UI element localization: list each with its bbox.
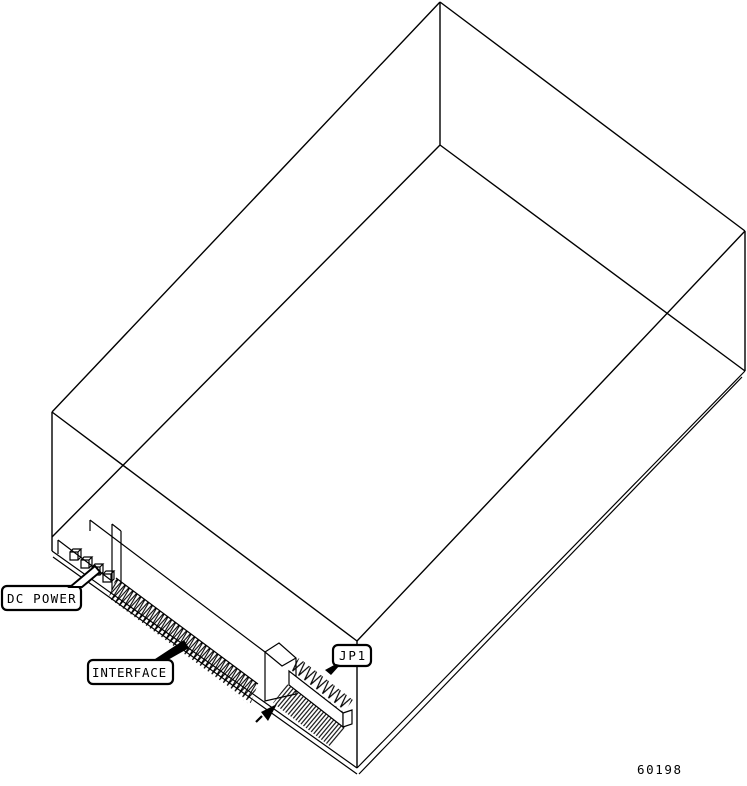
- dc-power-label: DC POWER: [2, 566, 100, 610]
- top-face-edges: [52, 2, 745, 641]
- technical-diagram: DC POWER INTERFACE JP1 60198: [0, 0, 747, 786]
- callout-tail-arrow: [70, 566, 100, 587]
- dc-power-pin: [70, 549, 81, 560]
- jp1-label-text: JP1: [339, 648, 367, 663]
- dc-power-pin: [81, 557, 92, 568]
- callout-tail-arrow: [325, 664, 340, 675]
- pin1-arrow-tail: [256, 716, 262, 722]
- corner-verticals: [52, 231, 745, 768]
- interface-label-text: INTERFACE: [92, 665, 167, 680]
- pin1-indicator-arrow: [256, 704, 277, 722]
- connector-strip: [58, 520, 353, 747]
- dc-power-label-text: DC POWER: [7, 591, 77, 606]
- drive-body-wireframe: [52, 2, 745, 774]
- jp1-label: JP1: [325, 645, 371, 675]
- part-number: 60198: [637, 762, 683, 777]
- back-edges: [52, 2, 745, 537]
- diagram-canvas: DC POWER INTERFACE JP1 60198: [0, 0, 747, 786]
- jumper-end-cap: [343, 710, 352, 727]
